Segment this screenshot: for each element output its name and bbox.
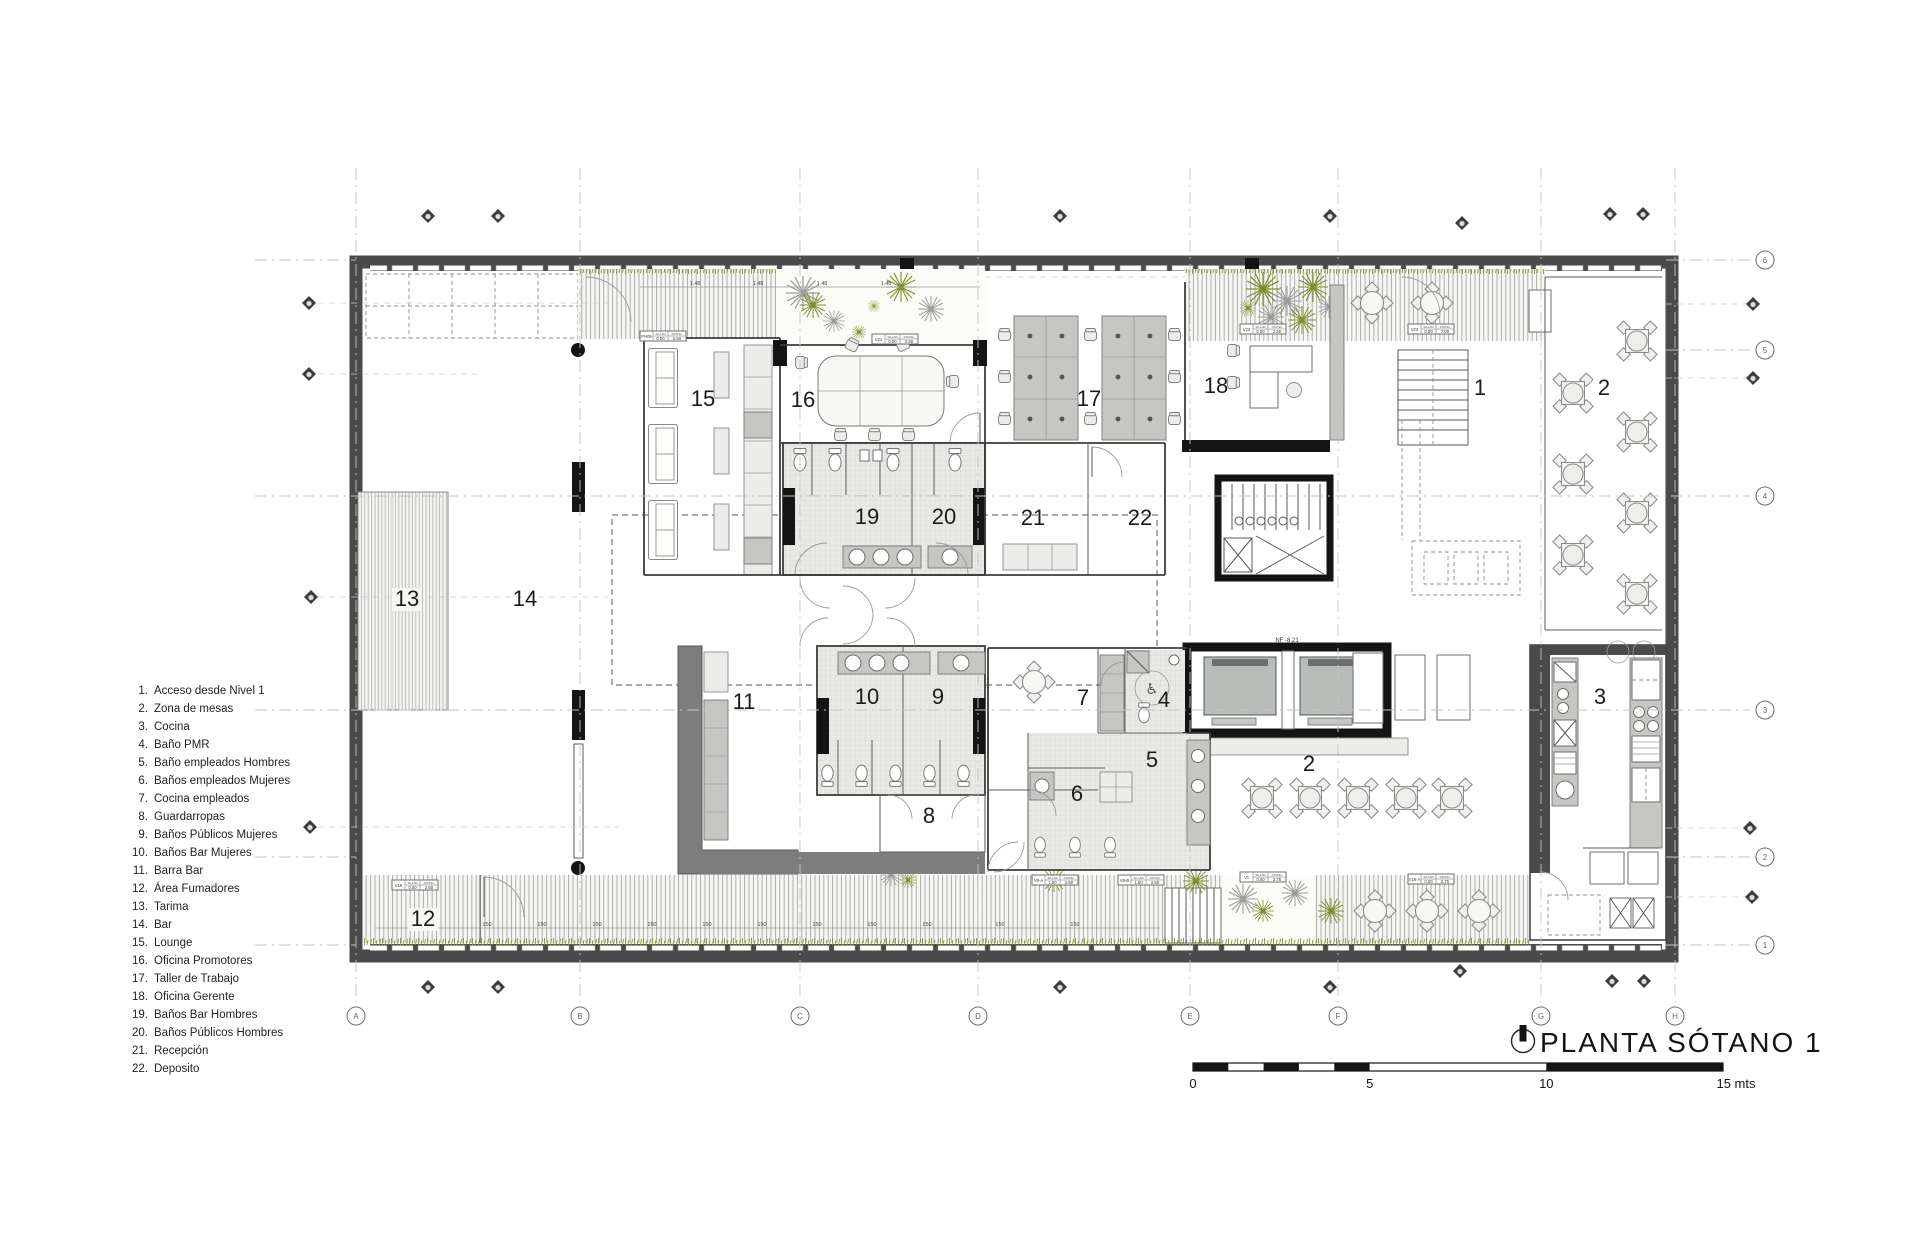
- cabinet-strip: [744, 345, 772, 575]
- column: [572, 690, 585, 740]
- tag-value: 2.60: [425, 885, 434, 890]
- room-label-banos-empleados-m: 6: [1071, 781, 1083, 806]
- dim-label: 150: [1070, 922, 1079, 928]
- grid-row-label: 1: [1763, 941, 1768, 950]
- dim-label: 150: [757, 922, 766, 928]
- legend-item: Tarima: [154, 901, 189, 913]
- room-label-bano-pmr: 4: [1158, 687, 1170, 712]
- legend-item: Baños Públicos Hombres: [154, 1027, 283, 1039]
- dim-label: 1.48: [753, 281, 764, 287]
- desk-bank: [999, 316, 1078, 440]
- grid-row-label: 3: [1763, 706, 1768, 715]
- tag-value: 3.75: [1273, 877, 1282, 882]
- legend-num: 17.: [132, 973, 148, 985]
- legend-item: Baño PMR: [154, 739, 210, 751]
- legend-num: 15.: [132, 937, 148, 949]
- grid-column-label: D: [975, 1012, 981, 1021]
- grid-row-label: 2: [1763, 853, 1768, 862]
- legend-num: 1.: [138, 685, 148, 697]
- dim-label: 150: [647, 922, 656, 928]
- legend-item: Baños empleados Mujeres: [154, 775, 290, 787]
- dim-label: 1.48: [881, 281, 892, 287]
- tag-id: V16-A: [1409, 877, 1421, 882]
- dim-label: 150: [922, 922, 931, 928]
- legend-num: 4.: [138, 739, 148, 751]
- dim-label: 150: [537, 922, 546, 928]
- tag-value: 2.75: [1441, 879, 1450, 884]
- counter-left: [1552, 658, 1578, 806]
- room-label-taller: 17: [1077, 386, 1101, 411]
- grid-column-bubbles: A B C D E F G H: [347, 1007, 1684, 1025]
- tag-value: 2.60: [905, 339, 914, 344]
- room-label-acceso: 1: [1474, 375, 1486, 400]
- tag-id: V22: [1243, 327, 1251, 332]
- legend-item: Baños Públicos Mujeres: [154, 829, 278, 841]
- grid-row-bubbles: 6 5 4 3 2 1: [1756, 251, 1774, 954]
- legend-num: 3.: [138, 721, 148, 733]
- room-lounge: [644, 338, 787, 575]
- bottom-window-strip: [370, 944, 1662, 952]
- legend-num: 9.: [138, 829, 148, 841]
- legend-num: 16.: [132, 955, 148, 967]
- elevator-level-annotation: NF -8.21: [1275, 638, 1299, 644]
- grid-column-label: F: [1336, 1012, 1341, 1021]
- legend-item: Barra Bar: [154, 865, 203, 877]
- title-block: PLANTA SÓTANO 1: [1512, 1025, 1823, 1058]
- sink-counter: [843, 546, 972, 568]
- grid-row-label: 6: [1763, 256, 1768, 265]
- column: [773, 340, 787, 366]
- legend-num: 12.: [132, 883, 148, 895]
- tag-value: 0.00: [1256, 877, 1265, 882]
- column: [973, 340, 987, 366]
- grid-column-label: E: [1187, 1012, 1192, 1021]
- smokers-deck-hatch: [363, 875, 1530, 943]
- tag-value: 0.00: [656, 336, 665, 341]
- legend-item: Guardarropas: [154, 811, 225, 823]
- tag-id: V8-B: [1120, 878, 1130, 883]
- room-label-lounge: 15: [691, 386, 715, 411]
- legend-num: 8.: [138, 811, 148, 823]
- tag-value: 2.60: [1151, 880, 1160, 885]
- tag-value: 0.00: [1424, 329, 1433, 334]
- dim-label: 150: [812, 922, 821, 928]
- room-label-guardarropas: 8: [923, 803, 935, 828]
- terrace-counter: [1529, 290, 1551, 332]
- tag-value: 1.50: [1134, 880, 1143, 885]
- legend-item: Taller de Trabajo: [154, 973, 239, 985]
- north-indicator-needle: [1520, 1025, 1527, 1042]
- legend-item: Recepción: [154, 1045, 208, 1057]
- legend-num: 6.: [138, 775, 148, 787]
- room-label-cocina: 3: [1594, 684, 1606, 709]
- scale-label-10: 10: [1539, 1076, 1553, 1091]
- dim-label: 150: [592, 922, 601, 928]
- legend-num: 5.: [138, 757, 148, 769]
- room-label-barra-bar: 11: [733, 689, 756, 714]
- bench: [1003, 544, 1077, 570]
- legend-item: Cocina: [154, 721, 190, 733]
- legend-item: Baño empleados Hombres: [154, 757, 290, 769]
- tag-value: 2.60: [1065, 880, 1074, 885]
- tag-value: 1.50: [1048, 880, 1057, 885]
- room-label-banos-publicos-m: 9: [932, 684, 944, 709]
- bottom-terrace: [363, 864, 1530, 945]
- column: [973, 698, 985, 754]
- legend-item: Deposito: [154, 1063, 199, 1075]
- legend-item: Lounge: [154, 937, 192, 949]
- tag-value: 0.00: [1424, 879, 1433, 884]
- column: [783, 488, 795, 545]
- room-label-banos-bar-h: 19: [855, 504, 879, 529]
- room-label-recepcion: 21: [1021, 505, 1045, 530]
- legend-item: Baños Bar Hombres: [154, 1009, 258, 1021]
- grid-column-label: H: [1672, 1012, 1678, 1021]
- grid-column-label: G: [1538, 1012, 1544, 1021]
- tag-value: 7.00: [1441, 329, 1450, 334]
- legend-num: 2.: [138, 703, 148, 715]
- legend-num: 18.: [132, 991, 148, 1003]
- dim-label: 150: [702, 922, 711, 928]
- column: [973, 488, 985, 545]
- tag-id: V1: [1244, 875, 1250, 880]
- sheet-title: PLANTA SÓTANO 1: [1540, 1027, 1823, 1058]
- service-wall: [700, 852, 985, 874]
- floor-plan-drawing: A B C D E F G H 6 5 4 3 2 1 PH09SILLAR0.…: [0, 0, 1920, 1255]
- tag-value: 2.60: [1273, 329, 1282, 334]
- room-label-zona-mesas: 2: [1598, 375, 1610, 400]
- room-label-bano-empleados-h: 5: [1146, 747, 1158, 772]
- room-label-deposito: 22: [1128, 505, 1152, 530]
- scale-bar: 0 5 10 15 mts: [1189, 1063, 1756, 1091]
- core-wall: [1182, 440, 1330, 452]
- tag-value: 0.00: [888, 339, 897, 344]
- legend-num: 14.: [132, 919, 148, 931]
- legend-num: 13.: [132, 901, 148, 913]
- legend-num: 22.: [132, 1063, 148, 1075]
- legend-num: 19.: [132, 1009, 148, 1021]
- floor-plan-sheet: A B C D E F G H 6 5 4 3 2 1 PH09SILLAR0.…: [0, 0, 1920, 1255]
- grid-column-label: C: [797, 1012, 803, 1021]
- tag-id: V19: [395, 883, 403, 888]
- legend-item: Cocina empleados: [154, 793, 250, 805]
- legend-num: 21.: [132, 1045, 148, 1057]
- scale-label-5: 5: [1366, 1076, 1373, 1091]
- scale-label-0: 0: [1189, 1076, 1196, 1091]
- room-label-area-fumadores: 12: [411, 906, 435, 931]
- bathrooms-10-9: [817, 646, 985, 795]
- deck-stair: [1165, 888, 1221, 943]
- counter-right: [1630, 658, 1662, 848]
- tag-id: V21: [875, 337, 883, 342]
- tag-value: 0.00: [1256, 329, 1265, 334]
- legend-item: Baños Bar Mujeres: [154, 847, 252, 859]
- grid-column-label: A: [353, 1012, 359, 1021]
- tag-id: V8-A: [1034, 878, 1044, 883]
- room-label-banos-bar-m: 10: [855, 684, 879, 709]
- scale-label-15: 15 mts: [1716, 1076, 1756, 1091]
- column: [817, 698, 829, 754]
- tag-id: PH09: [641, 334, 652, 339]
- manager-desk: [1250, 346, 1312, 372]
- room-label-oficina-gerente: 18: [1204, 373, 1228, 398]
- legend-num: 20.: [132, 1027, 148, 1039]
- office-chair: [1287, 383, 1302, 398]
- room-label-cocina-empleados: 7: [1077, 685, 1089, 710]
- legend-item: Bar: [154, 919, 172, 931]
- legend-item: Oficina Gerente: [154, 991, 235, 1003]
- legend-num: 11.: [133, 865, 148, 877]
- grid-row-label: 5: [1763, 346, 1768, 355]
- legend-num: 7.: [138, 793, 148, 805]
- stair-core: [1218, 478, 1330, 578]
- legend-item: Acceso desde Nivel 1: [154, 685, 265, 697]
- dim-label: 1.48: [817, 281, 828, 287]
- room-label-banos-publicos-h: 20: [932, 504, 956, 529]
- room-label-bar: 14: [513, 586, 537, 611]
- dim-label: 1.48: [690, 281, 701, 287]
- tag-id: V23: [1411, 327, 1419, 332]
- dim-label: 150: [482, 922, 491, 928]
- grass-fringe: [363, 938, 1530, 945]
- room-label-zona-mesas-2: 2: [1303, 751, 1315, 776]
- dim-label: 150: [867, 922, 876, 928]
- column: [572, 462, 585, 512]
- dim-label: 150: [995, 922, 1004, 928]
- grid-row-label: 4: [1763, 492, 1768, 501]
- legend: 1.Acceso desde Nivel 1 2.Zona de mesas 3…: [132, 685, 290, 1075]
- room-label-oficina-promotores: 16: [791, 387, 815, 412]
- sink-counter: [838, 652, 985, 674]
- deck-hatch-left: [578, 269, 776, 339]
- tag-value: 2.60: [673, 336, 682, 341]
- legend-item: Área Fumadores: [154, 882, 240, 895]
- grid-column-label: B: [577, 1012, 582, 1021]
- legend-item: Zona de mesas: [154, 703, 234, 715]
- tag-value: 0.00: [408, 885, 417, 890]
- legend-num: 10.: [132, 847, 148, 859]
- room-label-tarima: 13: [395, 586, 419, 611]
- wheelchair-icon: ♿: [1145, 680, 1158, 698]
- legend-item: Oficina Promotores: [154, 955, 253, 967]
